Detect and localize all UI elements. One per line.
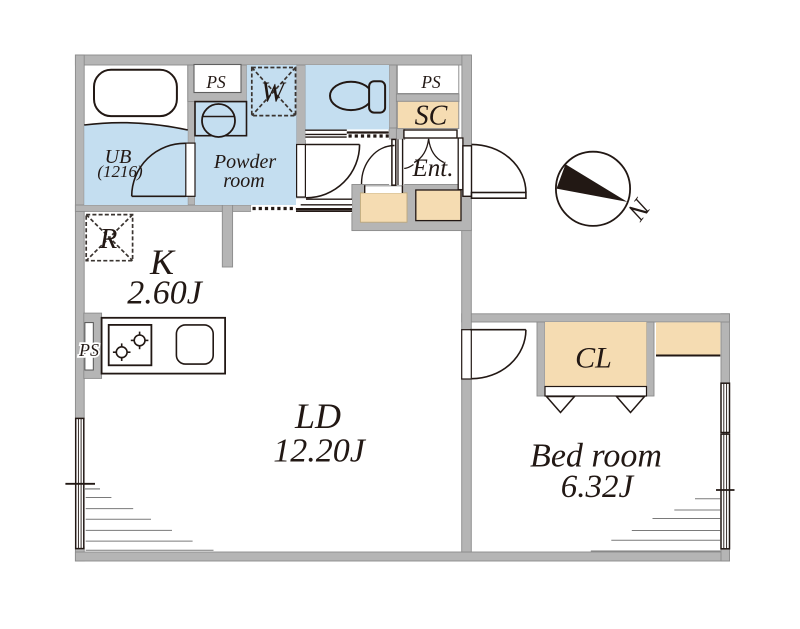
svg-text:CL: CL <box>575 342 612 375</box>
svg-text:LD: LD <box>294 396 341 436</box>
svg-text:SC: SC <box>415 101 448 132</box>
svg-text:2.60J: 2.60J <box>127 275 204 312</box>
svg-text:PS: PS <box>420 72 441 92</box>
svg-text:(1216): (1216) <box>97 162 143 181</box>
svg-text:6.32J: 6.32J <box>561 469 635 505</box>
svg-text:12.20J: 12.20J <box>273 433 367 470</box>
svg-text:room: room <box>223 170 264 192</box>
svg-text:W: W <box>261 78 287 109</box>
svg-text:PS: PS <box>205 72 226 92</box>
svg-text:Ent.: Ent. <box>412 155 454 182</box>
svg-text:PS: PS <box>78 340 99 360</box>
svg-text:R: R <box>99 223 118 255</box>
